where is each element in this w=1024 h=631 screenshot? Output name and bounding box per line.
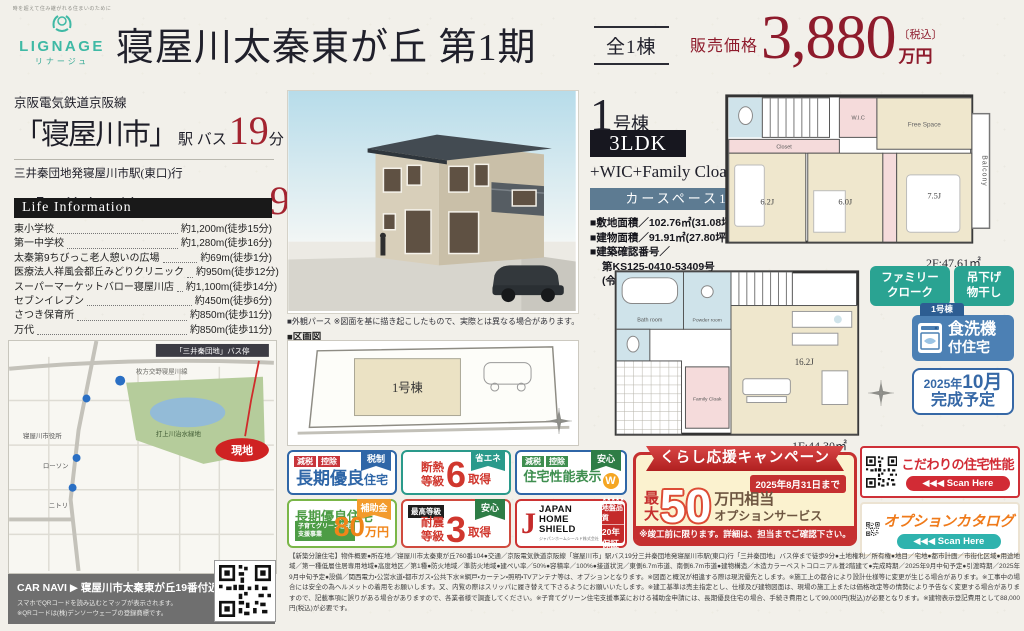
bus-route: 三井秦団地発寝屋川市駅(東口)行 bbox=[14, 165, 274, 181]
map-image: 「三井秦団地」バス停 枚方交野寝屋川線 打上川治水緑地 寝屋川市役所 ローソン … bbox=[9, 341, 274, 571]
building-area: ■建物面積／91.91㎡(27.80坪) bbox=[590, 231, 735, 246]
campaign-ribbon: くらし応援キャンペーン bbox=[646, 446, 844, 471]
dot-leader bbox=[37, 334, 187, 335]
plan-extra: +WIC+Family Cloak bbox=[590, 162, 735, 182]
dishwasher-icon bbox=[918, 323, 942, 353]
bus-stop-tag: 「三井秦団地」バス停 bbox=[175, 345, 250, 355]
list-item: 医療法人祥風会都丘みどりクリニック約950m(徒歩12分) bbox=[14, 266, 272, 280]
confirmation-label: ■建築確認番号／ bbox=[590, 245, 735, 260]
ldk-label: 16.2J bbox=[795, 357, 815, 367]
floorplan-1f-image: Bath room Powder room Family Cloak UP 16… bbox=[588, 260, 872, 450]
room-6-0j-label: 6.0J bbox=[838, 198, 852, 207]
bath-label: Bath room bbox=[637, 317, 663, 323]
campaign-box: くらし応援キャンペーン 2025年8月31日まで 最大 50 万円相当 オプショ… bbox=[633, 452, 857, 546]
dot-leader bbox=[177, 291, 183, 292]
brand-logo: 時を超えて住み継がれる住まいのために LIGNAGE リナージュ bbox=[12, 5, 112, 67]
laurel-crest-icon bbox=[49, 12, 75, 32]
badge-insulation-grade6: 省エネ 断熱等級 6 取得 bbox=[401, 450, 511, 495]
list-item: 万代約850m(徒歩11分) bbox=[14, 324, 272, 338]
brand-tagline: 時を超えて住み継がれる住まいのために bbox=[12, 5, 112, 12]
jhs-logo: J bbox=[521, 509, 536, 539]
dot-leader bbox=[163, 262, 198, 263]
car-navi-note2: ※QRコードは(株)デンソーウェーブの登録商標です。 bbox=[17, 610, 167, 617]
area-map: 「三井秦団地」バス停 枚方交野寝屋川線 打上川治水緑地 寝屋川市役所 ローソン … bbox=[8, 340, 277, 574]
list-item: さつき保育所約850m(徒歩11分) bbox=[14, 309, 272, 323]
price-tax-note: 〔税込〕 bbox=[899, 26, 943, 42]
exterior-render bbox=[287, 90, 579, 314]
balcony-label: Balcony bbox=[981, 155, 988, 186]
road-label: 枚方交野寝屋川線 bbox=[136, 367, 188, 376]
site-plan-image: 1号棟 bbox=[288, 341, 576, 443]
feature-tag-family-cloak: ファミリー クローク bbox=[870, 266, 950, 306]
list-item: セブンイレブン約450m(徒歩6分) bbox=[14, 295, 272, 309]
list-item: 太秦第9ちびっこ老人憩いの広場約69m(徒歩1分) bbox=[14, 252, 272, 266]
badge-performance-label: 減税控除 安心 住宅性能表示W bbox=[515, 450, 627, 495]
poi-lawson: ローソン bbox=[43, 463, 69, 470]
total-units-badge: 全1棟 bbox=[594, 26, 669, 65]
dishwasher-badge: 食洗機 付住宅 bbox=[912, 315, 1014, 361]
dot-leader bbox=[87, 305, 192, 306]
list-item: 第一中学校約1,280m(徒歩16分) bbox=[14, 237, 272, 251]
qr-card-title: こだわりの住宅性能 bbox=[901, 454, 1014, 473]
badge-seismic-grade3: 最高等級 安心 耐震等級 3 取得 bbox=[401, 499, 511, 548]
feature-tag-hanging-dry: 吊下げ 物干し bbox=[954, 266, 1014, 306]
family-cloak-label: Family Cloak bbox=[693, 397, 722, 403]
free-space-label: Free Space bbox=[908, 122, 942, 129]
station-minutes-unit: 分 bbox=[269, 128, 284, 149]
plan-type-badge: 3LDK bbox=[590, 130, 686, 157]
price-block: 販売価格 3,880 〔税込〕 万円 bbox=[690, 2, 943, 74]
life-information-title: Life Information bbox=[14, 198, 272, 218]
park-label: 打上川治水緑地 bbox=[156, 429, 202, 438]
life-information-list: 東小学校約1,200m(徒歩15分) 第一中学校約1,280m(徒歩16分) 太… bbox=[14, 223, 272, 338]
qr-card-option-catalog: オプションカタログ ◀◀◀ Scan Here bbox=[860, 502, 1020, 556]
house-render-image bbox=[288, 91, 576, 311]
dishwasher-unit-tab: 1号棟 bbox=[920, 303, 964, 316]
qr-card-housing-performance: こだわりの住宅性能 ◀◀◀ Scan Here bbox=[860, 446, 1020, 498]
completion-badge: 2025年10月 完成予定 bbox=[912, 368, 1014, 415]
dot-leader bbox=[77, 320, 187, 321]
site-marker: 現地 bbox=[231, 443, 253, 457]
car-navi-label: CAR NAVI ▶ bbox=[17, 582, 78, 594]
page-title: 寝屋川太秦東が丘 第1期 bbox=[116, 16, 537, 71]
list-item: スーパーマーケットバロー寝屋川店約1,100m(徒歩14分) bbox=[14, 281, 272, 295]
station-mode: 駅 バス bbox=[178, 128, 227, 149]
dot-leader bbox=[67, 248, 178, 249]
campaign-note: ※竣工前に限ります。詳細は、担当までご確認下さい。 bbox=[636, 526, 854, 543]
siteplan-unit-label: 1号棟 bbox=[392, 380, 423, 395]
qr-code bbox=[866, 452, 897, 492]
list-item: 東小学校約1,200m(徒歩15分) bbox=[14, 223, 272, 237]
closet-label: Closet bbox=[776, 144, 792, 150]
wic-label: W.I.C bbox=[852, 116, 865, 122]
price-unit: 万円 bbox=[899, 42, 943, 67]
real-estate-flyer: 時を超えて住み継がれる住まいのために LIGNAGE リナージュ 寝屋川太秦東が… bbox=[0, 0, 1024, 631]
station-minutes: 19 bbox=[229, 111, 269, 151]
brand-name: LIGNAGE bbox=[12, 38, 112, 55]
map-qr-code bbox=[214, 560, 276, 622]
floorplan-2f-image: Balcony DN W.I.C Free Space Closet 6.2J … bbox=[722, 88, 1018, 250]
compass-icon bbox=[868, 380, 894, 411]
price-value: 3,880 bbox=[761, 2, 896, 74]
poi-city-hall: 寝屋川市役所 bbox=[23, 431, 62, 440]
badge-long-term-quality: 減税控除 税制 長期優良住宅 bbox=[287, 450, 397, 495]
land-area: ■敷地面積／102.76㎡(31.08坪) bbox=[590, 216, 735, 231]
station-name: 「寝屋川市」 bbox=[14, 111, 176, 153]
pond bbox=[150, 398, 225, 428]
floorplan-1f: Bath room Powder room Family Cloak UP 16… bbox=[588, 260, 872, 455]
car-navi-note1: スマホでQRコードを読み込むとマップが表示されます。 bbox=[17, 600, 177, 607]
powder-label: Powder room bbox=[693, 317, 722, 323]
price-label: 販売価格 bbox=[690, 32, 758, 56]
car-navi-destination: 寝屋川市太秦東が丘19番付近 bbox=[81, 582, 219, 594]
badge-japan-home-shield: J JAPAN HOME SHIELD ジャパンホームシールド株式会社 ★★★★… bbox=[515, 499, 627, 548]
life-information: Life Information 東小学校約1,200m(徒歩15分) 第一中学… bbox=[14, 198, 272, 338]
brand-furigana: リナージュ bbox=[12, 56, 112, 67]
dot-leader bbox=[57, 233, 178, 234]
floorplan-2f: Balcony DN W.I.C Free Space Closet 6.2J … bbox=[722, 88, 1018, 255]
scan-here-pill: ◀◀◀ Scan Here bbox=[906, 476, 1010, 491]
exterior-caption: ■外観パース ※図面を基に描き起こしたもので、実際とは異なる場合があります。 bbox=[287, 316, 587, 327]
room-7-5j-label: 7.5J bbox=[927, 192, 941, 201]
campaign-amount: 50 bbox=[660, 486, 711, 527]
fine-print: 【新築分譲住宅】物件概要●所在地／寝屋川市太秦東が丘760番104●交通／京阪電… bbox=[289, 552, 1020, 630]
room-6-2j-label: 6.2J bbox=[760, 198, 774, 207]
scan-here-pill: ◀◀◀ Scan Here bbox=[897, 534, 1001, 549]
poi-nitori: ニトリ bbox=[49, 503, 68, 510]
site-plan: 1号棟 bbox=[287, 340, 579, 446]
qr-code bbox=[866, 508, 880, 550]
badge-subsidy-80: 長期優良住宅 補助金 子育てグリーン住宅支援事業 80万円 bbox=[287, 499, 397, 548]
dot-leader bbox=[187, 277, 193, 278]
compass-icon bbox=[546, 408, 572, 439]
divider bbox=[14, 159, 274, 160]
qr-card-title: オプションカタログ bbox=[884, 510, 1015, 531]
